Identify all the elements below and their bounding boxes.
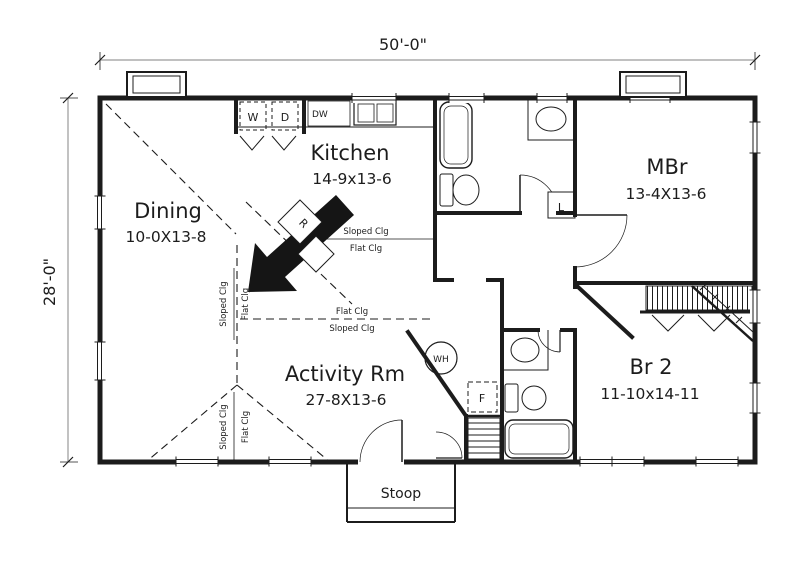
exterior-walls bbox=[100, 98, 755, 462]
roof-vent-left bbox=[127, 72, 186, 97]
lower-bath-door bbox=[538, 330, 560, 352]
lower-bath-fixtures bbox=[502, 330, 573, 458]
dimension-top: 50'-0" bbox=[95, 35, 760, 70]
clg-note-flat-2: Flat Clg bbox=[336, 307, 368, 317]
clg-note-sloped-1: Sloped Clg bbox=[343, 227, 388, 237]
roof-vent-right bbox=[620, 72, 686, 97]
room-labels: Dining 10-0X13-8 Kitchen 14-9x13-6 MBr 1… bbox=[126, 141, 707, 502]
furnace-label: F bbox=[479, 392, 485, 405]
clg-note-sloped-2: Sloped Clg bbox=[329, 324, 374, 334]
floor-plan-page: R W D DW bbox=[0, 0, 800, 571]
hall-bath-fixtures bbox=[440, 98, 575, 206]
activity-size: 27-8X13-6 bbox=[306, 391, 387, 409]
stoop-label: Stoop bbox=[381, 486, 422, 502]
dining-label: Dining bbox=[134, 199, 202, 223]
mbr-size: 13-4X13-6 bbox=[626, 185, 707, 203]
br2-label: Br 2 bbox=[629, 355, 672, 379]
floor-plan-drawing: R W D DW bbox=[0, 0, 800, 571]
width-dimension-label: 50'-0" bbox=[379, 35, 427, 54]
clg-note-flat-3: Flat Clg bbox=[241, 288, 251, 320]
br2-closet bbox=[640, 286, 755, 331]
dimension-left: 28'-0" bbox=[40, 93, 78, 467]
clg-note-sloped-3: Sloped Clg bbox=[219, 281, 229, 326]
dryer-label: D bbox=[281, 111, 289, 124]
front-door-opening bbox=[358, 457, 404, 467]
mbr-door bbox=[575, 215, 627, 267]
br2-size: 11-10x14-11 bbox=[600, 385, 699, 403]
clg-note-flat-4: Flat Clg bbox=[241, 411, 251, 443]
front-door bbox=[360, 420, 402, 462]
height-dimension-label: 28'-0" bbox=[40, 258, 59, 306]
clg-note-flat-1: Flat Clg bbox=[350, 244, 382, 254]
clg-note-sloped-4: Sloped Clg bbox=[219, 404, 229, 449]
kitchen-label: Kitchen bbox=[311, 141, 390, 165]
dining-size: 10-0X13-8 bbox=[126, 228, 207, 246]
dishwasher-label: DW bbox=[312, 110, 328, 120]
entry-closet-door bbox=[436, 432, 462, 458]
water-heater-label: WH bbox=[433, 355, 449, 365]
kitchen-size: 14-9x13-6 bbox=[312, 170, 392, 188]
activity-label: Activity Rm bbox=[285, 362, 405, 386]
mbr-label: MBr bbox=[646, 155, 688, 179]
washer-label: W bbox=[248, 111, 259, 124]
shelves-closet bbox=[468, 418, 500, 460]
